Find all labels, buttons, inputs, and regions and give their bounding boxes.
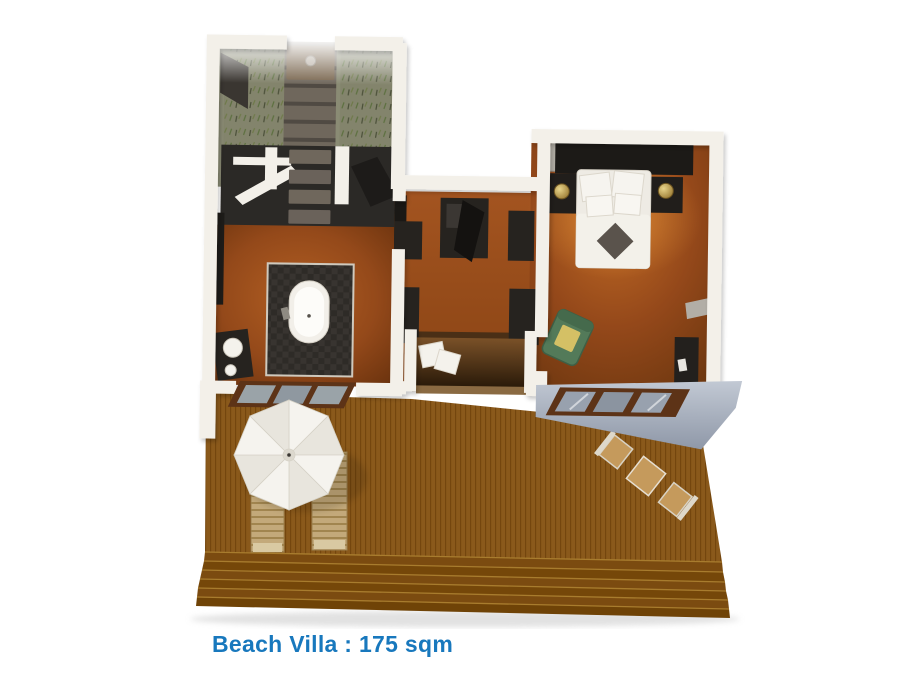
wall-corner-post [199,380,216,438]
wall-top-outdoor-left [207,34,287,49]
stepping-stone [289,150,331,165]
bedside-lamp [658,183,673,198]
wall-outdoor-right [391,43,407,189]
floor-plan-rendering [0,0,900,676]
bed-pillow [586,195,613,217]
bathtub-basin [294,287,325,337]
wall-bath-hall-divider [390,249,405,393]
plan-caption: Beach Villa : 175 sqm [212,631,453,658]
bedroom-sliding-doors [546,387,690,417]
bench-front [416,385,526,395]
wall-bedroom-top [531,129,721,146]
lounger-footrest [314,540,345,549]
vanity-unit [212,329,254,381]
shower-partition-wall [233,157,291,166]
lounger-footrest [253,543,282,552]
umbrella-pole [287,453,291,457]
stepping-stone [289,170,331,185]
wall-mirror-strip [216,213,224,305]
stepping-stone [288,210,330,225]
floor-plan-page: Beach Villa : 175 sqm [0,0,900,676]
stepping-stone [289,190,331,205]
patio-umbrella [234,400,344,510]
wall-hall-top [393,175,549,191]
wardrobe [508,211,535,261]
wall-hall-bottom [390,381,406,394]
shower-partition-wall [335,146,350,204]
bedside-lamp [554,184,569,199]
wall-top-outdoor-right [335,36,403,51]
entry-bench [416,337,527,395]
wall-hall-bedroom-divider [535,141,551,337]
bed-pillow [614,193,642,215]
